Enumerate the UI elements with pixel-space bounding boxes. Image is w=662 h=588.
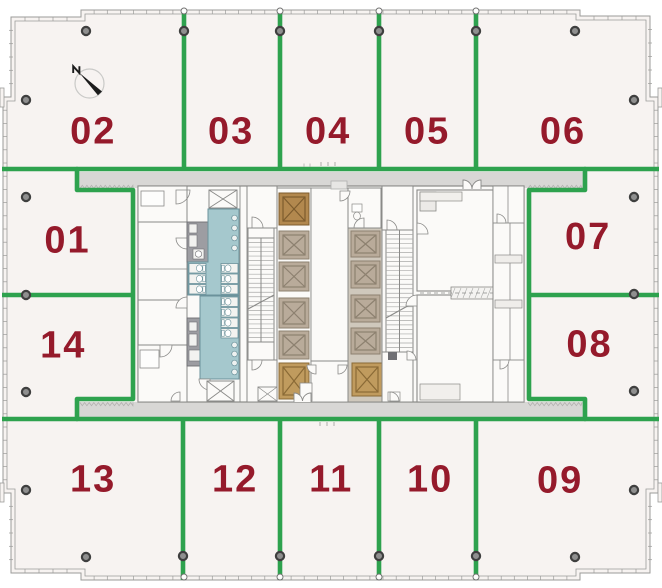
svg-text:14: 14	[40, 324, 86, 366]
svg-text:01: 01	[44, 219, 90, 261]
svg-text:03: 03	[208, 110, 254, 152]
svg-text:02: 02	[70, 110, 116, 152]
svg-text:07: 07	[565, 216, 611, 258]
svg-text:13: 13	[70, 458, 116, 500]
svg-text:12: 12	[212, 458, 258, 500]
svg-text:10: 10	[407, 458, 453, 500]
svg-text:09: 09	[537, 459, 583, 501]
svg-text:05: 05	[404, 110, 450, 152]
svg-text:06: 06	[540, 110, 586, 152]
svg-text:04: 04	[305, 110, 351, 152]
svg-text:08: 08	[566, 323, 612, 365]
svg-text:11: 11	[309, 458, 353, 500]
